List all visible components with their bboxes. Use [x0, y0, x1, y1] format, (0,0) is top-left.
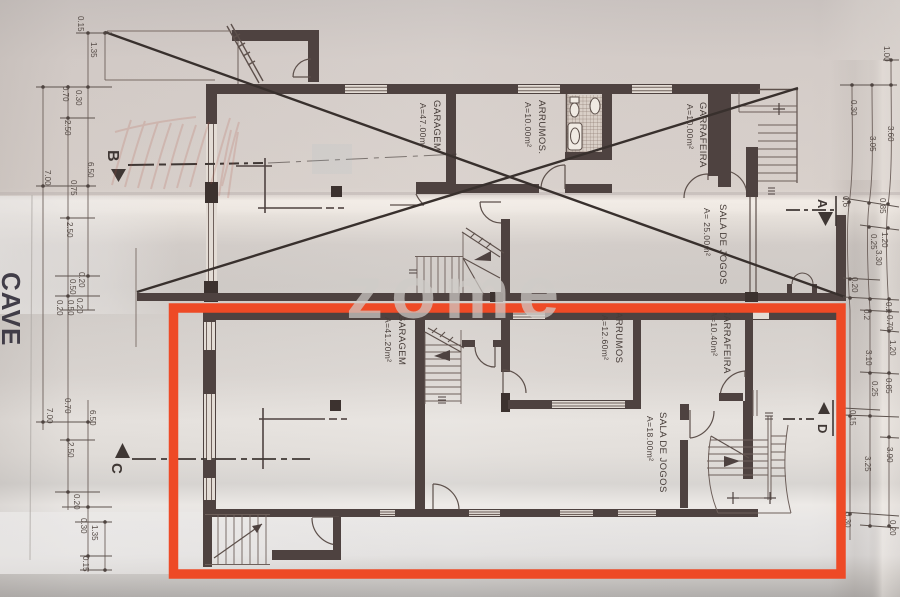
svg-text:0,6: 0,6 — [841, 196, 850, 208]
svg-text:3.60: 3.60 — [886, 126, 895, 142]
svg-text:GARRAFEIRA: GARRAFEIRA — [697, 102, 708, 168]
svg-text:A=12.60m²: A=12.60m² — [600, 315, 610, 360]
svg-text:A: A — [815, 199, 830, 209]
svg-text:0.30: 0.30 — [849, 100, 858, 116]
svg-text:0.20: 0.20 — [888, 520, 897, 536]
svg-text:0.30: 0.30 — [74, 90, 83, 106]
svg-text:0.75: 0.75 — [69, 180, 78, 196]
svg-text:0.20: 0.20 — [75, 298, 84, 314]
svg-text:3.05: 3.05 — [868, 136, 877, 152]
svg-text:0.20: 0.20 — [55, 300, 64, 316]
svg-text:ARRUMOS.: ARRUMOS. — [536, 100, 547, 154]
svg-text:3.30: 3.30 — [874, 250, 883, 266]
svg-text:1.00: 1.00 — [882, 46, 891, 62]
svg-text:D: D — [815, 424, 830, 433]
svg-text:2.50: 2.50 — [65, 222, 74, 238]
svg-text:0.15: 0.15 — [848, 410, 857, 426]
svg-text:1.35: 1.35 — [90, 525, 99, 541]
svg-text:SALA DE JOGOS: SALA DE JOGOS — [657, 412, 668, 493]
svg-text:0.2: 0.2 — [884, 302, 893, 314]
svg-text:zome: zome — [346, 251, 567, 334]
svg-text:0.25: 0.25 — [870, 381, 879, 397]
svg-text:0.25: 0.25 — [869, 234, 878, 250]
svg-text:A=18.00m²: A=18.00m² — [645, 416, 655, 461]
svg-text:3.25: 3.25 — [863, 456, 872, 472]
svg-text:1.35: 1.35 — [89, 42, 98, 58]
svg-text:0.50: 0.50 — [68, 279, 77, 295]
svg-text:3.90: 3.90 — [885, 447, 894, 463]
svg-text:0.70: 0.70 — [63, 398, 72, 414]
svg-text:1.20: 1.20 — [880, 232, 889, 248]
svg-text:CAVE: CAVE — [0, 272, 26, 346]
svg-text:0.85: 0.85 — [884, 378, 893, 394]
svg-text:0.70: 0.70 — [885, 315, 894, 331]
svg-text:0.30: 0.30 — [79, 518, 88, 534]
svg-text:GARRAFEIRA: GARRAFEIRA — [721, 308, 732, 374]
svg-text:0.70: 0.70 — [61, 86, 70, 102]
svg-text:6.50: 6.50 — [86, 162, 95, 178]
svg-text:1.20: 1.20 — [888, 340, 897, 356]
svg-text:A=10.40m²: A=10.40m² — [709, 311, 719, 356]
svg-text:A= 25.00m²: A= 25.00m² — [702, 208, 712, 256]
svg-text:7.00: 7.00 — [43, 170, 52, 186]
svg-text:A=47.00m²: A=47.00m² — [418, 103, 428, 148]
svg-text:0.2: 0.2 — [862, 309, 871, 321]
svg-text:0.15: 0.15 — [76, 16, 85, 32]
svg-text:6.50: 6.50 — [88, 410, 97, 426]
svg-text:0.50: 0.50 — [66, 300, 75, 316]
svg-text:ARRUMOS: ARRUMOS — [613, 312, 624, 363]
svg-text:SALA DE JOGOS: SALA DE JOGOS — [717, 204, 728, 285]
svg-text:0.85: 0.85 — [878, 198, 887, 214]
svg-text:2.50: 2.50 — [66, 442, 75, 458]
svg-text:0.20: 0.20 — [850, 277, 859, 293]
svg-text:GARAGEM: GARAGEM — [431, 100, 442, 151]
svg-text:0.15: 0.15 — [81, 556, 90, 572]
svg-text:0.20: 0.20 — [77, 272, 86, 288]
svg-text:2.50: 2.50 — [63, 120, 72, 136]
svg-text:3.10: 3.10 — [864, 350, 873, 366]
svg-text:A=10.00m²: A=10.00m² — [523, 102, 533, 147]
svg-text:A=10.00m²: A=10.00m² — [685, 104, 695, 149]
svg-text:0.20: 0.20 — [72, 494, 81, 510]
svg-text:C: C — [108, 463, 125, 474]
svg-text:7.00: 7.00 — [45, 408, 54, 424]
